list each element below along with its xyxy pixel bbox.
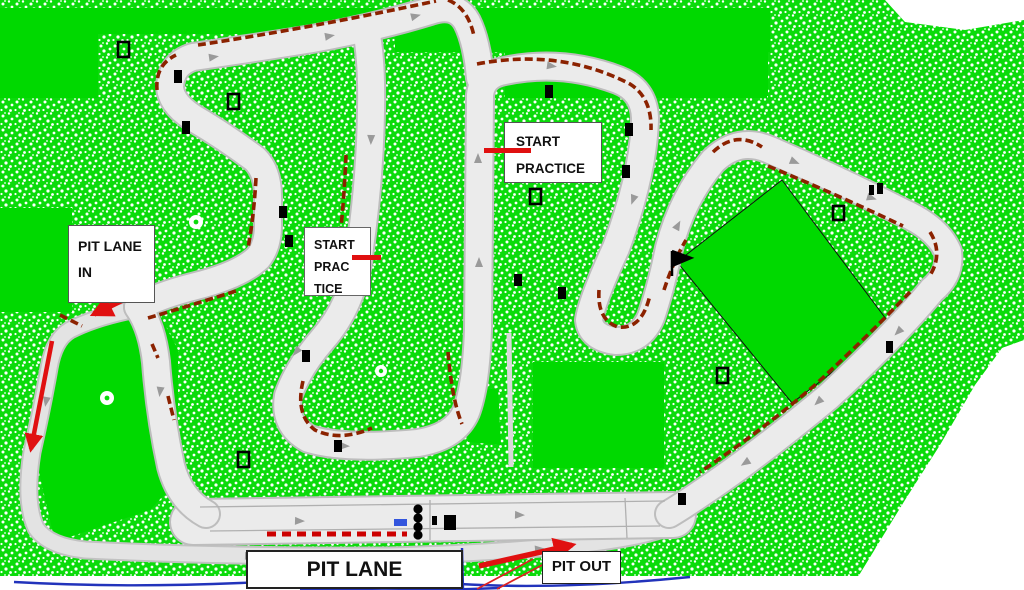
start-practice-lower-label: START PRAC TICE xyxy=(304,227,371,296)
track-map: PIT LANE IN START PRACTICE START PRAC TI… xyxy=(0,0,1024,590)
service-path xyxy=(509,333,511,467)
pit-lane-label: PIT LANE xyxy=(246,550,463,589)
start-lower-line1: START xyxy=(314,234,370,256)
pit-out-label: PIT OUT xyxy=(542,551,621,584)
pit-out-text: PIT OUT xyxy=(552,558,611,575)
pit-lane-in-line1: PIT LANE xyxy=(78,233,154,259)
pit-lane-text: PIT LANE xyxy=(307,558,403,581)
pit-lane-in-label: PIT LANE IN xyxy=(68,225,155,303)
start-lower-line3: TICE xyxy=(314,278,370,300)
start-practice-lower-line xyxy=(352,255,381,260)
start-upper-line2: PRACTICE xyxy=(516,155,601,182)
pit-lane-in-line2: IN xyxy=(78,259,154,285)
start-practice-upper-line xyxy=(484,148,531,153)
pit-vehicle xyxy=(394,519,407,526)
